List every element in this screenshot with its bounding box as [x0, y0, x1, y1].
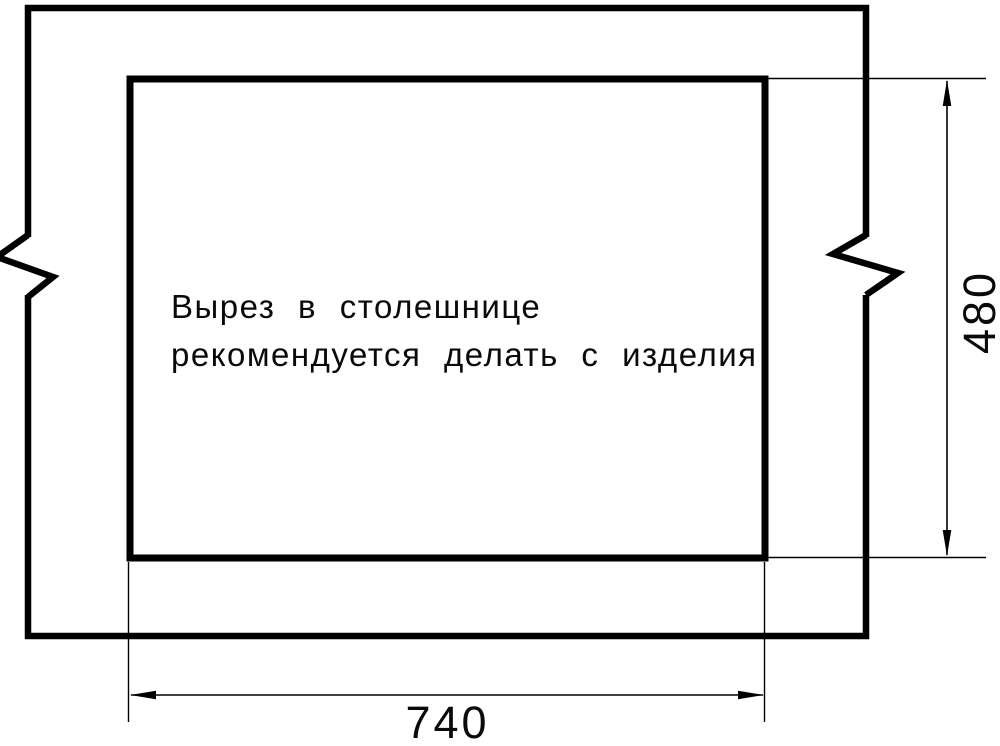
cutout-note: Вырез в столешнице рекомендуется делать …	[171, 283, 758, 379]
cutout-note-line1: Вырез в столешнице	[171, 283, 758, 331]
break-symbol-left	[0, 235, 53, 297]
countertop-outline-upper	[28, 8, 866, 237]
break-symbol-right	[833, 235, 898, 295]
dimension-height-label: 480	[950, 252, 1000, 372]
technical-drawing: Вырез в столешнице рекомендуется делать …	[0, 0, 1000, 746]
arrowhead-height-bottom	[943, 530, 952, 556]
arrowhead-height-top	[943, 80, 952, 106]
dimension-width-label: 740	[130, 697, 765, 746]
cutout-note-line2: рекомендуется делать с изделия	[171, 331, 758, 379]
